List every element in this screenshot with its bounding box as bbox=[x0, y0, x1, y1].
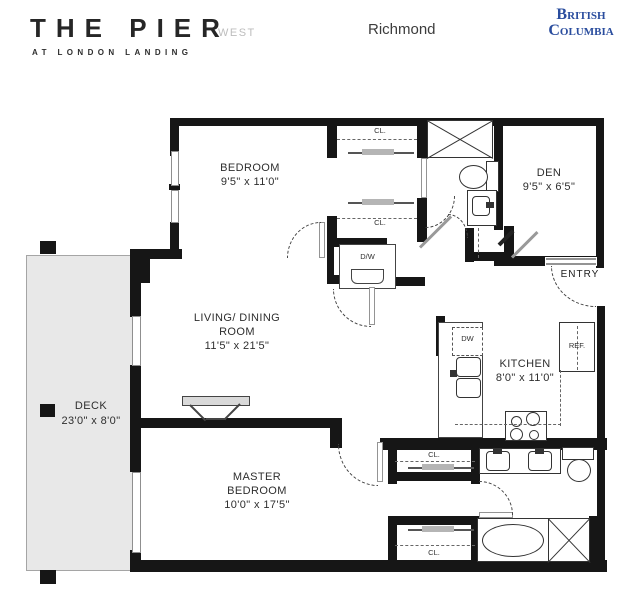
entry-door-panel bbox=[546, 263, 596, 265]
bedroom-dims: 9'5" x 11'0" bbox=[178, 175, 322, 189]
vanity-sink-basin bbox=[528, 451, 552, 471]
washer-dryer-label: D/W bbox=[339, 252, 396, 261]
vanity-faucet bbox=[535, 448, 544, 454]
deck-dims-label: 23'0" x 8'0" bbox=[32, 414, 150, 428]
dashed-counter-line bbox=[478, 228, 479, 258]
closet-rod-hangers bbox=[422, 526, 454, 532]
living-dims: 11'5" x 21'5" bbox=[167, 339, 307, 353]
living-name1: LIVING/ DINING bbox=[167, 311, 307, 325]
deck-name-label: DECK bbox=[52, 399, 130, 413]
toilet-bowl bbox=[459, 165, 488, 189]
refrigerator-label: REF. bbox=[559, 341, 595, 350]
wall bbox=[130, 418, 342, 428]
closet-label: CL. bbox=[363, 126, 397, 135]
closet-label: CL. bbox=[363, 218, 397, 227]
door-swing-arc bbox=[287, 222, 321, 258]
washer-dryer-door bbox=[351, 269, 384, 284]
wall bbox=[40, 241, 56, 254]
stove-burner bbox=[511, 416, 522, 427]
bedroom-label: BEDROOM 9'5" x 11'0" bbox=[178, 161, 322, 189]
dashed-shelf-line bbox=[395, 545, 475, 546]
bathroom-faucet bbox=[486, 202, 494, 208]
window bbox=[132, 472, 141, 553]
kitchen-label: KITCHEN 8'0" x 11'0" bbox=[455, 357, 595, 385]
wall bbox=[170, 118, 604, 126]
floorplan-sheet: THE PIER AT LONDON LANDING WEST Richmond… bbox=[0, 0, 640, 602]
door-leaf bbox=[421, 158, 427, 198]
bathtub-basin bbox=[482, 524, 544, 557]
vanity-sink-basin bbox=[486, 451, 510, 471]
closet-label: CL. bbox=[417, 450, 451, 459]
closet-rod-hangers bbox=[362, 149, 394, 155]
vanity-faucet bbox=[493, 448, 502, 454]
wall bbox=[589, 516, 601, 564]
living-name2: ROOM bbox=[167, 325, 307, 339]
wall bbox=[388, 516, 480, 525]
entry-label: ENTRY bbox=[556, 269, 604, 281]
door-swing-arc bbox=[333, 289, 371, 327]
den-dims: 9'5" x 6'5" bbox=[497, 180, 601, 194]
master-name2: BEDROOM bbox=[185, 484, 329, 498]
living-dining-label: LIVING/ DINING ROOM 11'5" x 21'5" bbox=[167, 311, 307, 353]
master-bedroom-label: MASTER BEDROOM 10'0" x 17'5" bbox=[185, 470, 329, 512]
den-label: DEN 9'5" x 6'5" bbox=[497, 166, 601, 194]
door-swing-arc bbox=[479, 481, 513, 515]
closet-label: CL. bbox=[417, 548, 451, 557]
wall bbox=[136, 255, 150, 283]
window bbox=[132, 316, 141, 366]
angled-door-leaf bbox=[511, 231, 539, 259]
wall bbox=[417, 118, 427, 158]
window bbox=[171, 190, 179, 223]
kitchen-name: KITCHEN bbox=[455, 357, 595, 371]
closet-rod-hangers bbox=[422, 464, 454, 470]
entry-door-panel bbox=[546, 258, 596, 260]
master-dims: 10'0" x 17'5" bbox=[185, 498, 329, 512]
floor-plan: BEDROOM 9'5" x 11'0" DEN 9'5" x 6'5" LIV… bbox=[0, 0, 640, 602]
stove-burner bbox=[510, 428, 523, 441]
door-swing-arc bbox=[448, 214, 468, 238]
dashed-shelf-line bbox=[455, 424, 561, 425]
bedroom-name: BEDROOM bbox=[178, 161, 322, 175]
dashed-shelf-line bbox=[395, 461, 475, 462]
kitchen-dims: 8'0" x 11'0" bbox=[455, 371, 595, 385]
master-name1: MASTER bbox=[185, 470, 329, 484]
door-swing-arc bbox=[338, 444, 378, 486]
closet-rod-hangers bbox=[362, 199, 394, 205]
wall bbox=[40, 570, 56, 584]
toilet-bowl bbox=[567, 459, 591, 482]
dishwasher-label: DW bbox=[452, 334, 483, 343]
wall bbox=[327, 118, 337, 158]
den-name: DEN bbox=[497, 166, 601, 180]
wall bbox=[388, 524, 397, 564]
dashed-shelf-line bbox=[337, 139, 417, 140]
wall bbox=[388, 472, 480, 481]
stove-burner bbox=[529, 430, 539, 440]
